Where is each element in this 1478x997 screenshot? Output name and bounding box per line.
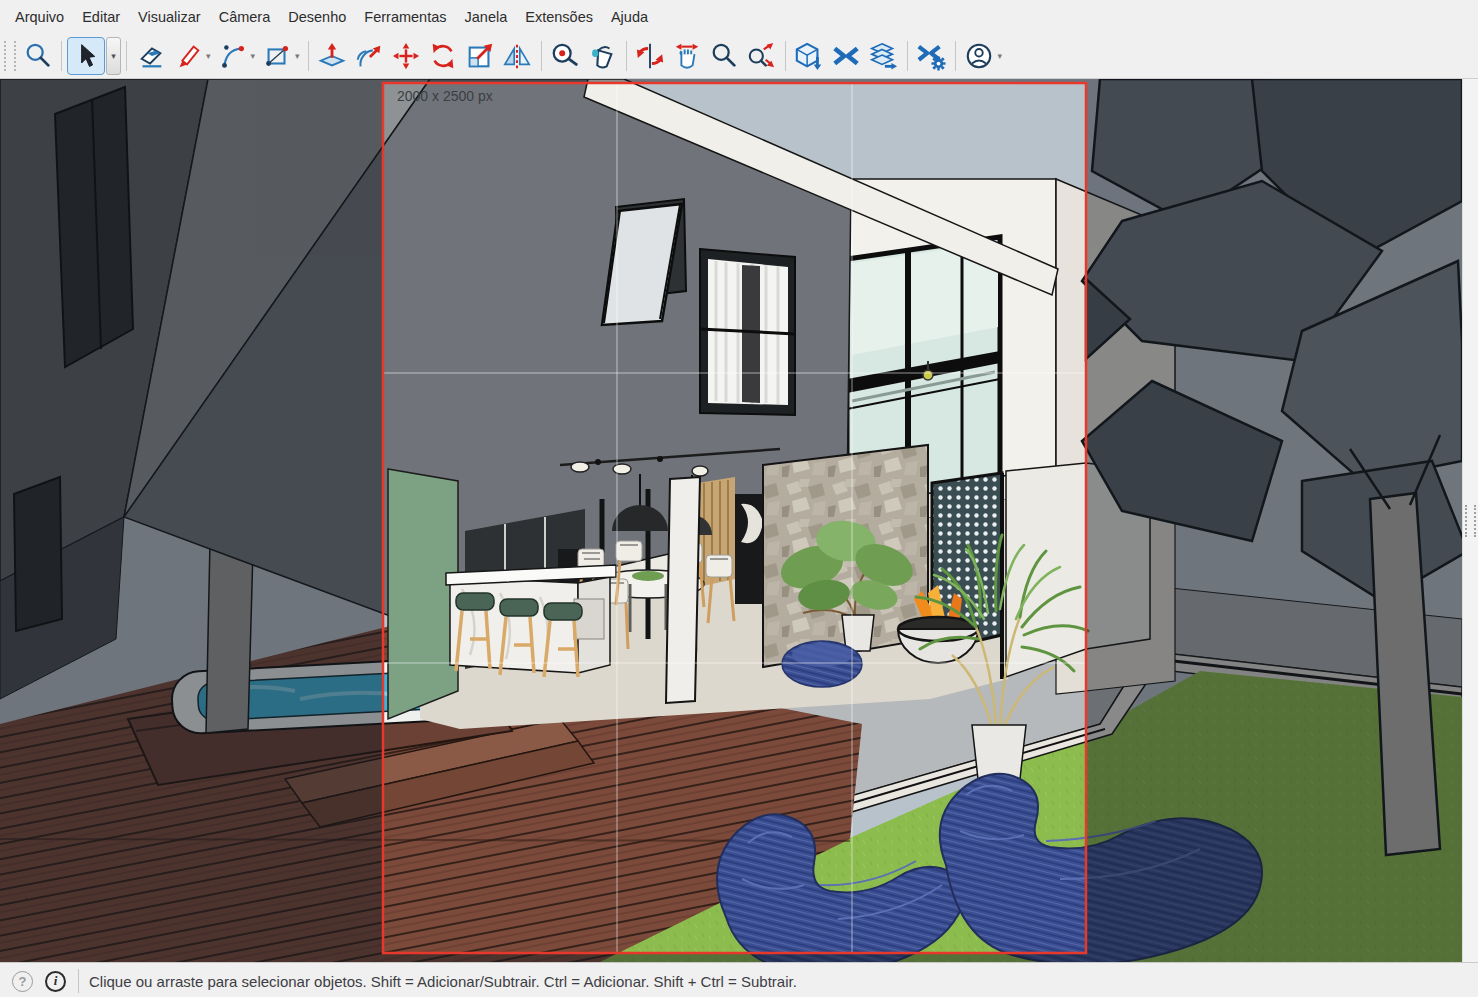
menu-extensoes[interactable]: Extensões <box>516 0 602 34</box>
magnifier-extents-icon <box>746 41 776 71</box>
status-message: Clique ou arraste para selecionar objeto… <box>89 973 797 990</box>
move-tool-button[interactable] <box>388 38 425 75</box>
orbit-tool-button[interactable] <box>632 38 669 75</box>
toolbar-separator <box>126 41 127 71</box>
push-pull-icon <box>317 41 347 71</box>
account-button[interactable] <box>961 38 998 75</box>
eraser-tool-button[interactable] <box>132 38 169 75</box>
pencil-icon <box>173 41 203 71</box>
rectangle-icon <box>262 41 292 71</box>
curtain-window <box>700 249 795 415</box>
green-wall <box>388 469 458 719</box>
paint-bucket-icon <box>587 41 617 71</box>
toolbar-separator <box>626 41 627 71</box>
follow-me-tool-button[interactable] <box>351 38 388 75</box>
eraser-icon <box>136 41 166 71</box>
paint-bucket-tool-button[interactable] <box>584 38 621 75</box>
rotate-tool-button[interactable] <box>425 38 462 75</box>
hand-pan-icon <box>672 41 702 71</box>
layout-stack-icon <box>868 41 898 71</box>
warehouse-box-icon <box>794 41 824 71</box>
pan-tool-button[interactable] <box>669 38 706 75</box>
push-pull-tool-button[interactable] <box>314 38 351 75</box>
follow-me-icon <box>354 41 384 71</box>
menu-ajuda[interactable]: Ajuda <box>602 0 657 34</box>
info-circle-icon[interactable]: i <box>45 971 66 992</box>
select-tool-button[interactable] <box>67 37 105 75</box>
trimble-connect-button[interactable] <box>828 38 865 75</box>
menu-arquivo[interactable]: Arquivo <box>6 0 73 34</box>
menu-editar[interactable]: Editar <box>73 0 129 34</box>
magnifier-icon <box>23 41 53 71</box>
toolbar-separator <box>61 41 62 71</box>
tray-grip-icon <box>1465 505 1476 537</box>
toolbar: ▾ ▾ ▾ <box>0 34 1478 79</box>
send-to-layout-button[interactable] <box>865 38 902 75</box>
toolbar-separator <box>955 41 956 71</box>
flip-tool-button[interactable] <box>499 38 536 75</box>
scale-box-icon <box>465 41 495 71</box>
line-tool-button[interactable] <box>169 38 206 75</box>
toolbar-drag-grip[interactable] <box>4 41 16 71</box>
warehouse-3d-button[interactable] <box>791 38 828 75</box>
tape-measure-tool-button[interactable] <box>547 38 584 75</box>
account-dropdown[interactable]: ▾ <box>998 51 1003 61</box>
rectangle-tool-button[interactable] <box>258 38 295 75</box>
scale-tool-button[interactable] <box>462 38 499 75</box>
extension-gear-icon <box>916 41 946 71</box>
toolbar-separator <box>785 41 786 71</box>
user-circle-icon <box>964 41 994 71</box>
help-circle-icon[interactable]: ? <box>12 971 33 992</box>
rectangle-tool-dropdown[interactable]: ▾ <box>295 51 300 61</box>
panel-tray-collapsed[interactable] <box>1462 79 1478 962</box>
connect-x-icon <box>831 41 861 71</box>
blue-pouf <box>782 641 862 687</box>
status-separator <box>78 969 79 993</box>
menu-desenho[interactable]: Desenho <box>279 0 355 34</box>
mirror-triangles-icon <box>502 41 532 71</box>
toolbar-separator <box>907 41 908 71</box>
toolbar-separator <box>308 41 309 71</box>
export-size-label: 2000 x 2500 px <box>397 88 493 104</box>
zoom-tool-button[interactable] <box>706 38 743 75</box>
arc-tool-button[interactable] <box>214 38 251 75</box>
arc-icon <box>217 41 247 71</box>
menu-visualizar[interactable]: Visualizar <box>129 0 210 34</box>
menu-ferramentas[interactable]: Ferramentas <box>355 0 455 34</box>
toolbar-separator <box>541 41 542 71</box>
cursor-arrow-icon <box>72 42 100 70</box>
tape-measure-icon <box>550 41 580 71</box>
status-bar: ? i Clique ou arraste para selecionar ob… <box>0 962 1478 997</box>
viewport-3d[interactable]: 2000 x 2500 px <box>0 79 1462 962</box>
move-cross-icon <box>391 41 421 71</box>
select-tool-dropdown[interactable]: ▾ <box>106 37 121 75</box>
line-tool-dropdown[interactable]: ▾ <box>206 51 211 61</box>
sketchup-window: Arquivo Editar Visualizar Câmera Desenho… <box>0 0 1478 997</box>
magnifier-zoom-icon <box>709 41 739 71</box>
menu-camera[interactable]: Câmera <box>210 0 280 34</box>
arc-tool-dropdown[interactable]: ▾ <box>251 51 256 61</box>
scene-render: 2000 x 2500 px <box>0 79 1462 962</box>
orbit-icon <box>635 41 665 71</box>
viewport-area: 2000 x 2500 px <box>0 79 1478 962</box>
menu-bar: Arquivo Editar Visualizar Câmera Desenho… <box>0 0 1478 34</box>
zoom-extents-tool-button[interactable] <box>743 38 780 75</box>
rotate-arrows-icon <box>428 41 458 71</box>
menu-janela[interactable]: Janela <box>456 0 517 34</box>
extension-manager-button[interactable] <box>913 38 950 75</box>
search-tool-button[interactable] <box>19 38 56 75</box>
patio-column <box>666 477 700 703</box>
